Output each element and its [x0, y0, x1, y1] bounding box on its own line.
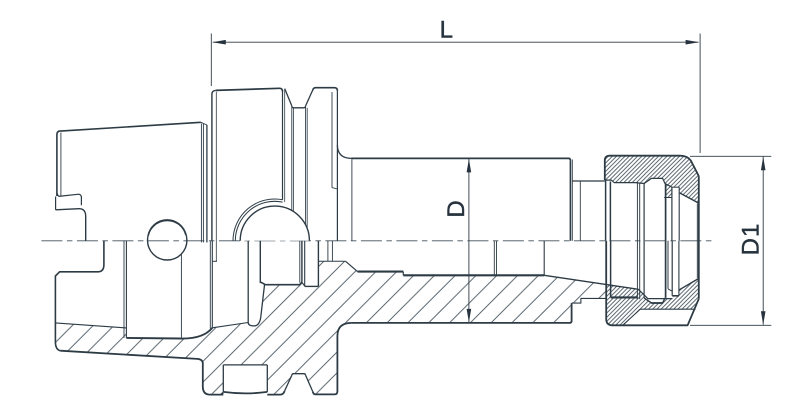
svg-text:L: L [440, 17, 453, 44]
svg-text:D: D [443, 200, 470, 217]
svg-text:D1: D1 [738, 223, 765, 256]
